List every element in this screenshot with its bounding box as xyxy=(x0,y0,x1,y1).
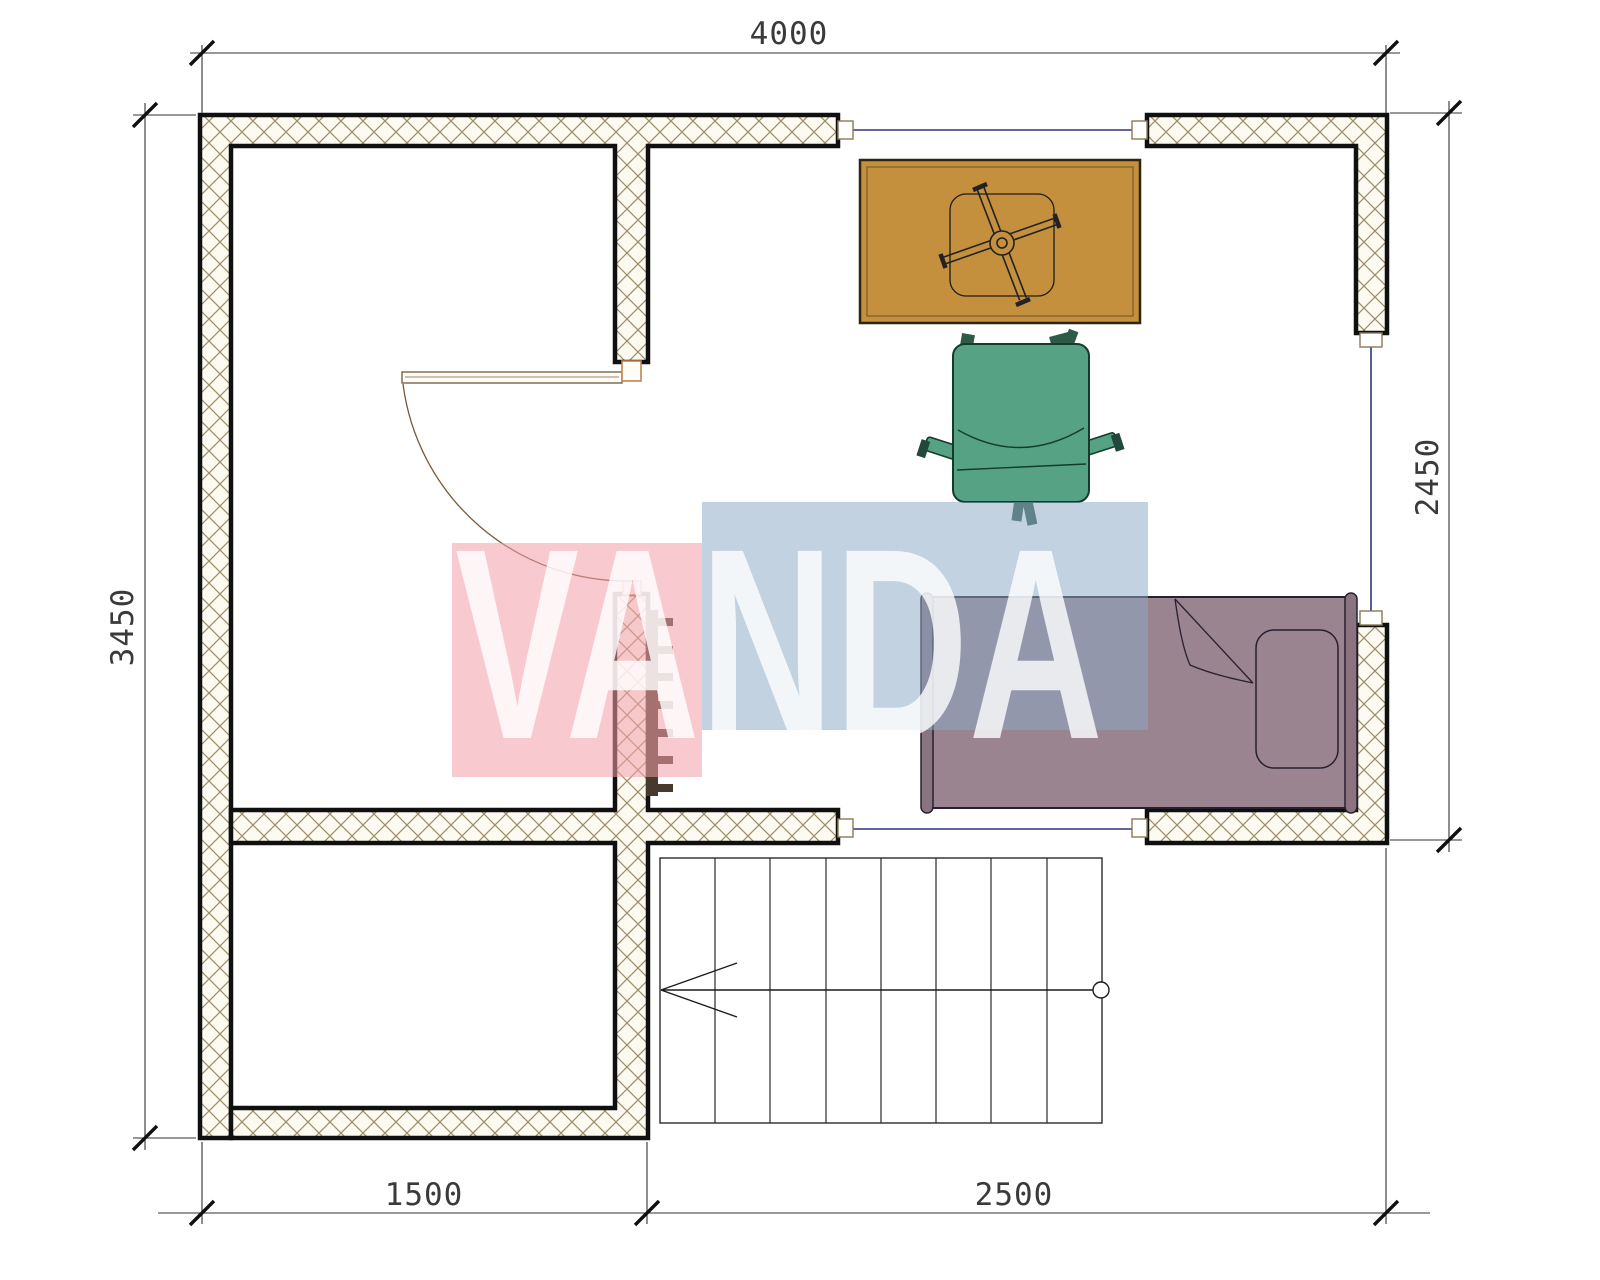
bed-pillow xyxy=(1256,630,1338,768)
window-jamb xyxy=(838,121,853,139)
desk xyxy=(860,160,1140,323)
window-jamb xyxy=(1132,819,1147,837)
watermark: VANDA xyxy=(452,492,1148,796)
wall-top-right xyxy=(1147,115,1387,333)
window-jamb xyxy=(1360,611,1382,625)
window-jamb xyxy=(1360,333,1382,347)
watermark-text: VANDA xyxy=(455,492,1103,796)
dimension-label-bottom-left: 1500 xyxy=(385,1177,464,1213)
stairs-direction-arrow xyxy=(661,963,1109,1017)
chair-seat xyxy=(953,344,1089,502)
bed-headboard xyxy=(1345,593,1357,813)
window-jamb xyxy=(838,819,853,837)
floor-plan-page: 4000 3450 2450 1500 2500 VANDA xyxy=(0,0,1600,1280)
dimension-label-top: 4000 xyxy=(750,16,829,52)
dimension-label-right: 2450 xyxy=(1410,438,1446,517)
stairs xyxy=(660,858,1109,1123)
door-jamb-top xyxy=(622,361,641,381)
dimension-label-left: 3450 xyxy=(105,588,141,667)
floor-plan-drawing: 4000 3450 2450 1500 2500 VANDA xyxy=(0,0,1600,1280)
window-jamb xyxy=(1132,121,1147,139)
dimension-label-bottom-right: 2500 xyxy=(975,1177,1054,1213)
